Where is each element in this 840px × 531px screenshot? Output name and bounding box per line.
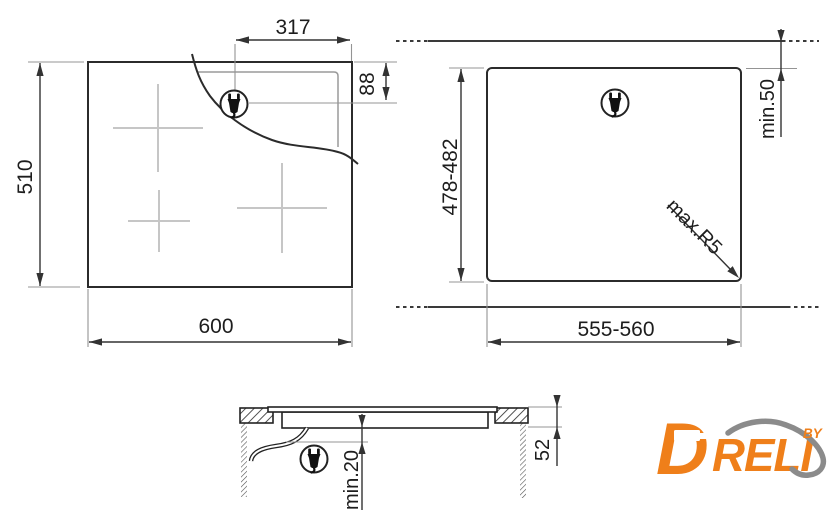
dim-label-plug-x: 317	[263, 15, 323, 39]
hob-outline	[88, 62, 352, 287]
plug-icon	[301, 446, 328, 473]
dim-label-min-bottom-clearance: min.20	[341, 440, 363, 520]
brand-logo: D RELI BY	[656, 409, 824, 490]
dim-label-cutout-width: 555-560	[561, 317, 671, 341]
dim-label-recess-depth: 52	[532, 430, 554, 470]
dim-label-hob-depth: 510	[13, 142, 37, 212]
cabinet-right-panel	[520, 423, 526, 498]
power-cable	[251, 428, 307, 461]
cabinet-left-panel	[241, 423, 247, 497]
hob-glass-section	[268, 407, 497, 412]
diagram-linework: D RELI BY	[0, 0, 840, 531]
side-section-view	[240, 395, 562, 510]
plug-icon	[221, 91, 248, 118]
installation-diagram: D RELI BY 317 88 510 600 478-482 min.50 …	[0, 0, 840, 531]
hob-body-section	[282, 412, 488, 428]
logo-by-label: BY	[803, 426, 824, 441]
dim-label-cutout-depth: 478-482	[438, 122, 462, 232]
worktop-right-section	[495, 408, 528, 423]
dim-label-hob-width: 600	[181, 314, 251, 338]
dim-label-min-rear-clearance: min.50	[757, 69, 779, 149]
plug-icon	[602, 90, 629, 117]
hob-top-view	[28, 36, 397, 347]
dim-label-plug-y: 88	[355, 64, 379, 104]
